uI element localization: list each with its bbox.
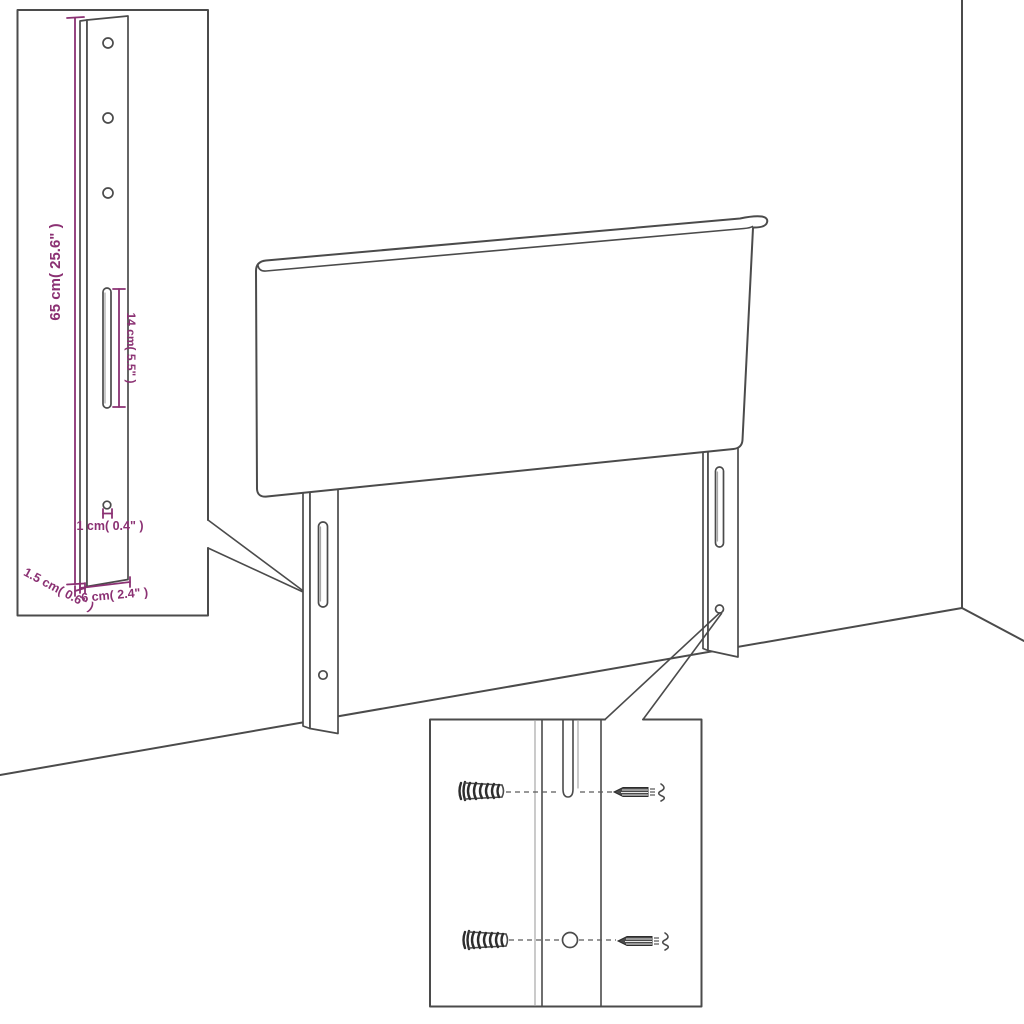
leg-small-hole [103, 501, 111, 509]
leg-strip-slot [563, 721, 573, 798]
headboard-leg-right [703, 442, 738, 657]
wall-plug-icon [460, 782, 504, 800]
callout-pointer-right [643, 614, 722, 720]
headboard [256, 216, 767, 496]
leg-slot [716, 467, 724, 547]
dim-height-label: 65 cm( 25.6" ) [47, 223, 64, 320]
leg-side-face [303, 480, 310, 729]
headboard-leg-left [303, 478, 338, 734]
leg-hole-top [103, 38, 113, 48]
leg-slot [319, 522, 328, 607]
screw-icon [618, 933, 668, 950]
leg-hole [716, 605, 724, 613]
floor-line-right [962, 608, 1024, 641]
leg-strip-drawing [535, 721, 601, 1006]
dim-slot-label: 14 cm( 5.5" ) [124, 312, 138, 383]
wall-plug-icon [464, 931, 508, 949]
dim-tick [67, 584, 84, 585]
mounting-detail-callout [430, 614, 722, 1007]
floor-line-left [0, 608, 962, 775]
hardware-row-upper [460, 782, 665, 801]
dim-width-label: 6 cm( 2.4" ) [81, 585, 149, 605]
leg-side-face [80, 20, 87, 590]
leg-hole-middle [103, 113, 113, 123]
screw-icon [614, 784, 664, 801]
diagram-canvas: 65 cm( 25.6" ) 14 cm( 5.5" ) 1 cm( 0.4" … [0, 0, 1024, 1024]
callout-box-border [430, 720, 702, 1007]
dimension-height: 65 cm( 25.6" ) [47, 17, 84, 585]
dim-hole-label: 1 cm( 0.4" ) [76, 519, 143, 533]
dim-tick [67, 17, 84, 18]
headboard-panel [256, 216, 767, 496]
leg-hole-bottom [103, 188, 113, 198]
leg-slot [103, 288, 111, 408]
leg-strip-hole [563, 933, 578, 948]
leg-hole [319, 671, 327, 679]
leg-detail-drawing [80, 16, 128, 590]
